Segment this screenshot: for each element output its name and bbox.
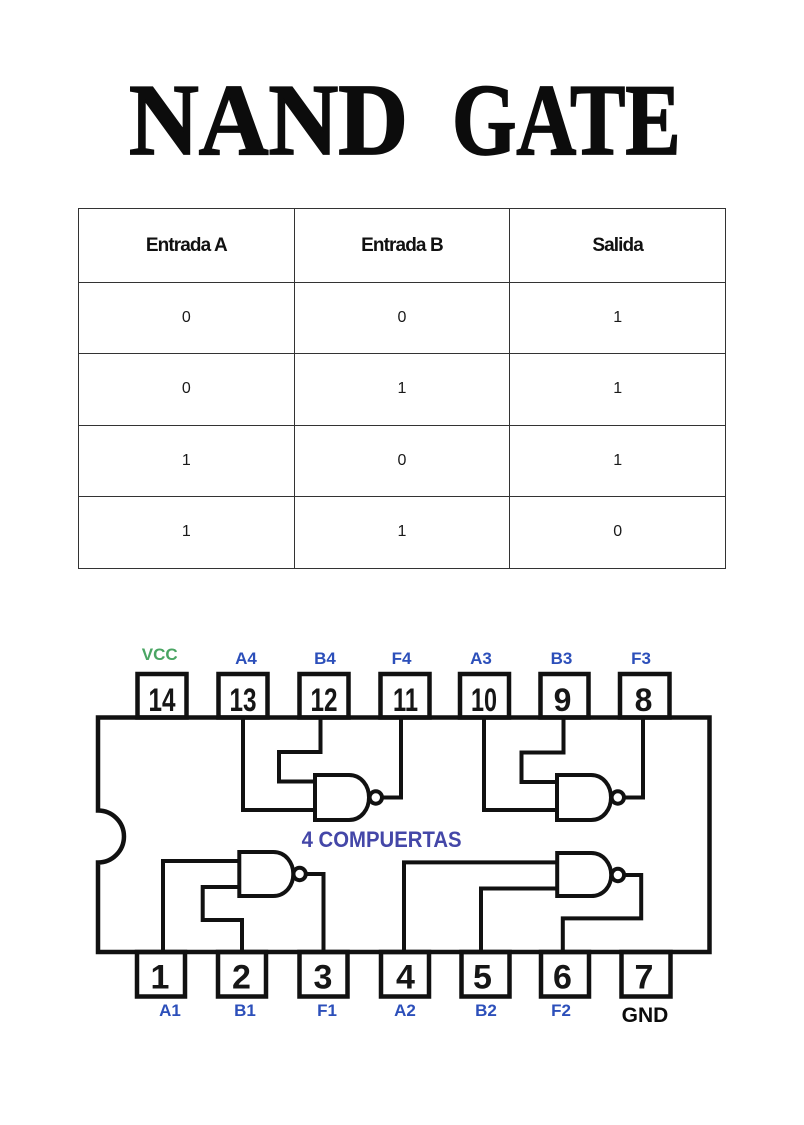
svg-text:A4: A4 xyxy=(235,649,257,668)
svg-text:F2: F2 xyxy=(551,1001,571,1020)
svg-text:B3: B3 xyxy=(551,649,573,668)
svg-text:F3: F3 xyxy=(631,649,651,668)
svg-text:4: 4 xyxy=(396,959,415,997)
svg-text:4 COMPUERTAS: 4 COMPUERTAS xyxy=(302,827,462,852)
svg-text:14: 14 xyxy=(149,682,176,718)
svg-text:VCC: VCC xyxy=(142,645,178,664)
svg-text:13: 13 xyxy=(230,682,257,718)
svg-text:5: 5 xyxy=(473,959,492,997)
svg-text:10: 10 xyxy=(471,682,497,718)
svg-text:B2: B2 xyxy=(475,1001,497,1020)
svg-text:8: 8 xyxy=(635,682,653,718)
svg-text:A3: A3 xyxy=(470,649,492,668)
svg-text:B1: B1 xyxy=(234,1001,256,1020)
svg-text:11: 11 xyxy=(393,682,418,718)
svg-text:B4: B4 xyxy=(314,649,336,668)
svg-text:3: 3 xyxy=(314,959,333,997)
svg-text:GND: GND xyxy=(622,1004,669,1027)
svg-text:6: 6 xyxy=(553,959,572,997)
svg-text:F1: F1 xyxy=(317,1001,337,1020)
svg-text:A1: A1 xyxy=(159,1001,181,1020)
svg-text:A2: A2 xyxy=(394,1001,416,1020)
svg-text:9: 9 xyxy=(554,682,572,718)
svg-text:12: 12 xyxy=(311,682,338,718)
svg-text:7: 7 xyxy=(635,959,654,997)
svg-text:2: 2 xyxy=(232,959,251,997)
svg-text:F4: F4 xyxy=(392,649,412,668)
svg-text:1: 1 xyxy=(151,959,170,997)
